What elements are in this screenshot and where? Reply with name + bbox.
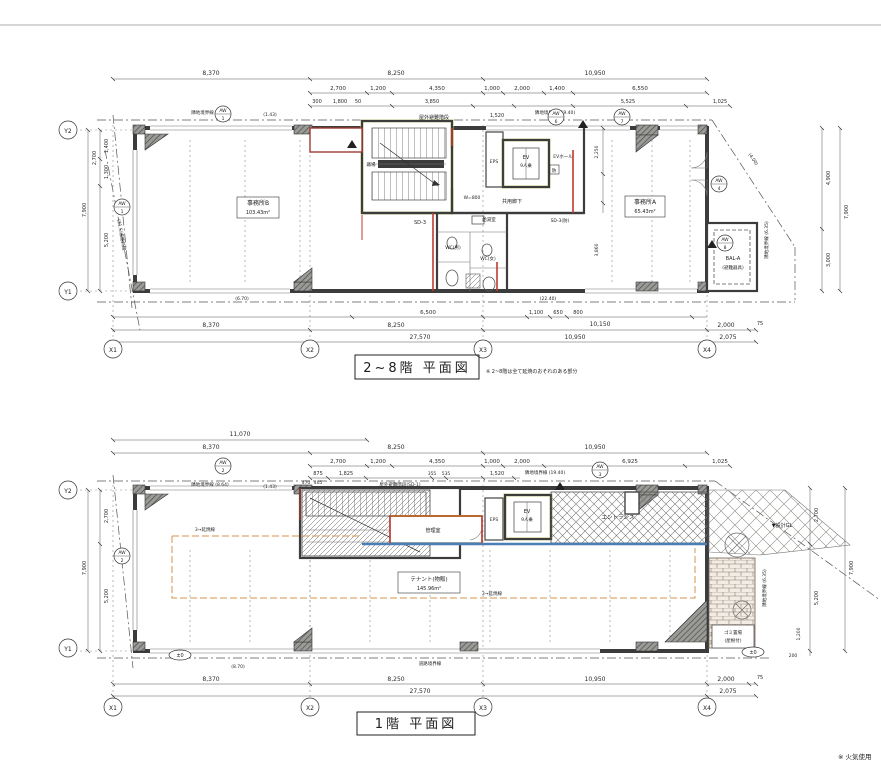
top-plan-title: 2~8階 平面図 ※ 2~8階は全て延焼のおそれのある部分: [355, 355, 577, 379]
dim-label: 7,900: [849, 561, 855, 575]
dim-label: 1,200: [370, 459, 386, 465]
bottom-plan-title-text: 1階 平面図: [375, 717, 457, 732]
dim-label: 75: [757, 675, 763, 681]
dim-label: 1,000: [484, 459, 500, 465]
dim-label: 875: [313, 471, 323, 477]
dim-label: 5,525: [621, 99, 635, 105]
axis-x1: X1: [109, 347, 117, 354]
dim-label: 50: [355, 99, 361, 105]
room-area: 65.43m²: [634, 209, 655, 215]
dim-label: 11,070: [230, 431, 251, 438]
dim-label: 2,700: [814, 508, 820, 522]
dim-label: 2,700: [330, 86, 346, 92]
bottom-plan-garden: [709, 490, 850, 648]
window-mark-type: AW: [721, 237, 729, 243]
dim-label: 3,860: [594, 243, 600, 256]
dim-label: 4,350: [429, 459, 445, 465]
window-mark-type: AW: [596, 464, 604, 470]
room-label: EPS: [490, 159, 499, 165]
dim-label: 405: [314, 480, 323, 486]
axis-x2: X2: [306, 705, 314, 712]
dim-label: 1,025: [713, 99, 727, 105]
top-plan-dim-lines: [88, 79, 840, 342]
window-mark-no: 4: [718, 186, 721, 192]
window-mark-type: AW: [219, 108, 227, 114]
window-mark-no: 6: [555, 119, 558, 125]
dim-label: 1,400: [549, 86, 565, 92]
room-label: 防: [552, 167, 557, 174]
dim-label: 7,900: [82, 203, 88, 217]
enshou-label: 3→延焼線: [482, 590, 503, 597]
level-mark: [578, 120, 588, 128]
door-label: SD-3: [414, 220, 426, 226]
dim-label: 8,250: [387, 322, 404, 329]
room-area: 103.43m²: [246, 210, 270, 216]
axis-y1: Y1: [63, 289, 72, 296]
dim-label: 1,520: [490, 471, 504, 477]
top-plan-dim-ticks: [86, 77, 842, 344]
dim-label: 2,700: [92, 151, 98, 165]
dim-label: 2,075: [719, 334, 736, 341]
dim-label: 7,900: [82, 561, 88, 575]
dim-label: 8,250: [387, 676, 404, 683]
gl-mark: ▼設計GL: [772, 522, 793, 529]
dim-label: 300: [312, 99, 322, 105]
axis-x4: X4: [703, 705, 711, 712]
level-zero: ±0: [749, 650, 756, 656]
top-plan-stair-core: [362, 121, 452, 213]
dim-label: 8,370: [202, 70, 219, 77]
room-label: テナント(物販): [410, 575, 447, 583]
dim-label: 535: [442, 471, 451, 477]
room-label: EVホール: [553, 154, 573, 160]
dim-label: 1,520: [490, 113, 504, 119]
door-label: SD-3(防): [551, 217, 570, 224]
window-mark-type: AW: [118, 550, 126, 556]
room-label: 9人乗: [521, 516, 533, 523]
door-label: W=800: [464, 195, 481, 201]
room-label: (避難器具): [722, 264, 744, 271]
room-label: EV: [523, 155, 530, 161]
boundary-label: (31.5)道路斜線: [115, 219, 127, 252]
room-label: BAL-A: [726, 256, 741, 262]
bottom-plan-title: 1階 平面図: [357, 712, 475, 735]
dim-label: 8,250: [387, 70, 404, 77]
dim-label: 10,950: [585, 444, 606, 451]
axis-y2: Y2: [63, 488, 72, 495]
room-label: WC(男): [445, 245, 461, 251]
dim-label: 1,000: [484, 86, 500, 92]
window-mark-type: AW: [552, 111, 560, 117]
dim-label: 10,950: [565, 334, 586, 341]
dim-label: 200: [789, 653, 798, 659]
dim-label: 27,570: [410, 334, 431, 341]
boundary-label: 道路境界線: [419, 660, 442, 667]
room-label: (屋根付): [724, 637, 741, 644]
boundary-label: (1.43): [263, 484, 277, 490]
axis-x3: X3: [479, 705, 487, 712]
room-label: EV: [524, 509, 531, 515]
axis-x1: X1: [109, 705, 117, 712]
dim-label: 5,200: [104, 233, 110, 247]
dim-label: 7,900: [844, 205, 850, 219]
window-mark-no: 1: [222, 116, 225, 122]
boundary-label: (6.70): [235, 296, 249, 302]
window-mark-type: AW: [219, 460, 227, 466]
dim-label: 1,825: [339, 471, 353, 477]
room-label: 屋外避難階段: [419, 114, 449, 121]
dim-label: 650: [553, 310, 563, 316]
dim-label: 4,900: [826, 171, 832, 185]
top-plan-title-text: 2~8階 平面図: [363, 361, 471, 376]
enshou-label: 3→延焼線: [195, 526, 216, 533]
dim-label: 470: [302, 480, 311, 486]
dim-label: 8,370: [202, 322, 219, 329]
dim-label: 2,000: [717, 322, 734, 329]
boundary-label: 隣地境界線 (19.40): [525, 469, 566, 476]
dim-label: 3,850: [425, 99, 439, 105]
right-wall-door-arcs: [691, 152, 707, 196]
boundary-label: 隣地境界線 (8.64): [191, 481, 229, 488]
boundary-label: (1.43): [263, 112, 277, 118]
dim-label: 2,075: [719, 688, 736, 695]
dim-label: 8,370: [202, 444, 219, 451]
room-label: エントランス: [602, 514, 635, 521]
level-zero: ±0: [176, 653, 183, 659]
boundary-label: (4.00): [746, 152, 759, 167]
dim-label: 1,300: [104, 165, 110, 179]
window-mark-type: AW: [118, 201, 126, 207]
room-label: 屋外避難階段(SD-1): [379, 481, 421, 488]
axis-x4: X4: [703, 347, 711, 354]
dim-label: 2,000: [514, 86, 530, 92]
dim-label: 2,250: [594, 145, 600, 158]
window-mark-type: AW: [618, 111, 626, 117]
dim-label: 1,200: [370, 86, 386, 92]
dim-label: 6,500: [420, 310, 436, 316]
dim-label: 2,700: [104, 509, 110, 523]
room-label: ゴミ置場: [724, 629, 742, 636]
window-mark-no: 3: [599, 472, 602, 478]
boundary-label: 隣地境界線 (6.35): [761, 569, 768, 607]
dim-label: 1,400: [104, 139, 110, 153]
window-mark-type: AW: [715, 178, 723, 184]
dim-label: 1,800: [333, 99, 347, 105]
window-mark-no: 8: [724, 245, 727, 251]
dim-label: 355: [428, 471, 437, 477]
dim-label: 10,150: [590, 321, 611, 328]
axis-y2: Y2: [63, 128, 72, 135]
dim-label: 800: [573, 310, 583, 316]
dim-label: 5,200: [104, 589, 110, 603]
dim-label: 27,570: [410, 688, 431, 695]
dim-label: 8,250: [387, 444, 404, 451]
top-plan: 8,370 8,250 10,950 2,700 1,200 4,350 1,0…: [59, 70, 850, 358]
dim-label: 10,950: [585, 676, 606, 683]
dim-label: 6,925: [622, 459, 638, 465]
dim-label: 75: [757, 321, 763, 327]
room-label: 踊場: [367, 161, 376, 168]
drawing-sheet: { "common": { "axis_x": ["X1","X2","X3",…: [0, 0, 881, 768]
bottom-plan: 11,070 8,370 8,250 10,950 2,700 1,200 4,…: [59, 431, 880, 716]
axis-x3: X3: [479, 347, 487, 354]
window-mark-no: 1: [121, 209, 124, 215]
top-plan-note: ※ 2~8階は全て延焼のおそれのある部分: [486, 368, 577, 375]
room-label: 事務所B: [247, 199, 269, 207]
boundary-label: (22.40): [540, 296, 557, 302]
dim-label: 2,700: [330, 459, 346, 465]
dim-label: 10,950: [585, 70, 606, 77]
dim-label: 5,200: [814, 591, 820, 605]
dim-label: 3,000: [826, 253, 832, 267]
axis-x2: X2: [306, 347, 314, 354]
boundary-label: (8.70): [231, 664, 245, 670]
room-label: EPS: [490, 517, 499, 523]
room-label: 9人乗: [520, 162, 532, 169]
dim-label: 1,025: [712, 459, 728, 465]
dim-label: 2,000: [514, 459, 530, 465]
room-label: 管理室: [425, 527, 440, 534]
window-mark-no: 7: [621, 119, 624, 125]
room-label: 給湯室: [482, 216, 496, 223]
dim-label: 4,350: [429, 86, 445, 92]
fire-use-note: ※ 火気使用: [838, 752, 872, 761]
window-mark-no: 2: [121, 558, 124, 564]
window-mark-no: 2: [222, 468, 225, 474]
dim-label: 2,000: [717, 676, 734, 683]
room-label: WC(女): [480, 255, 496, 262]
boundary-label: 隣地境界線 (6.35): [763, 221, 770, 259]
floor-plan-drawing: 8,370 8,250 10,950 2,700 1,200 4,350 1,0…: [0, 0, 881, 768]
dim-label: 8,370: [202, 676, 219, 683]
room-label: 事務所A: [634, 198, 657, 206]
dim-label: 6,550: [632, 86, 648, 92]
dim-label: 1,100: [529, 310, 543, 316]
room-label: 共用廊下: [502, 198, 522, 205]
axis-y1: Y1: [63, 646, 72, 653]
room-area: 145.96m²: [417, 586, 441, 592]
dim-label: 1,200: [796, 627, 802, 640]
